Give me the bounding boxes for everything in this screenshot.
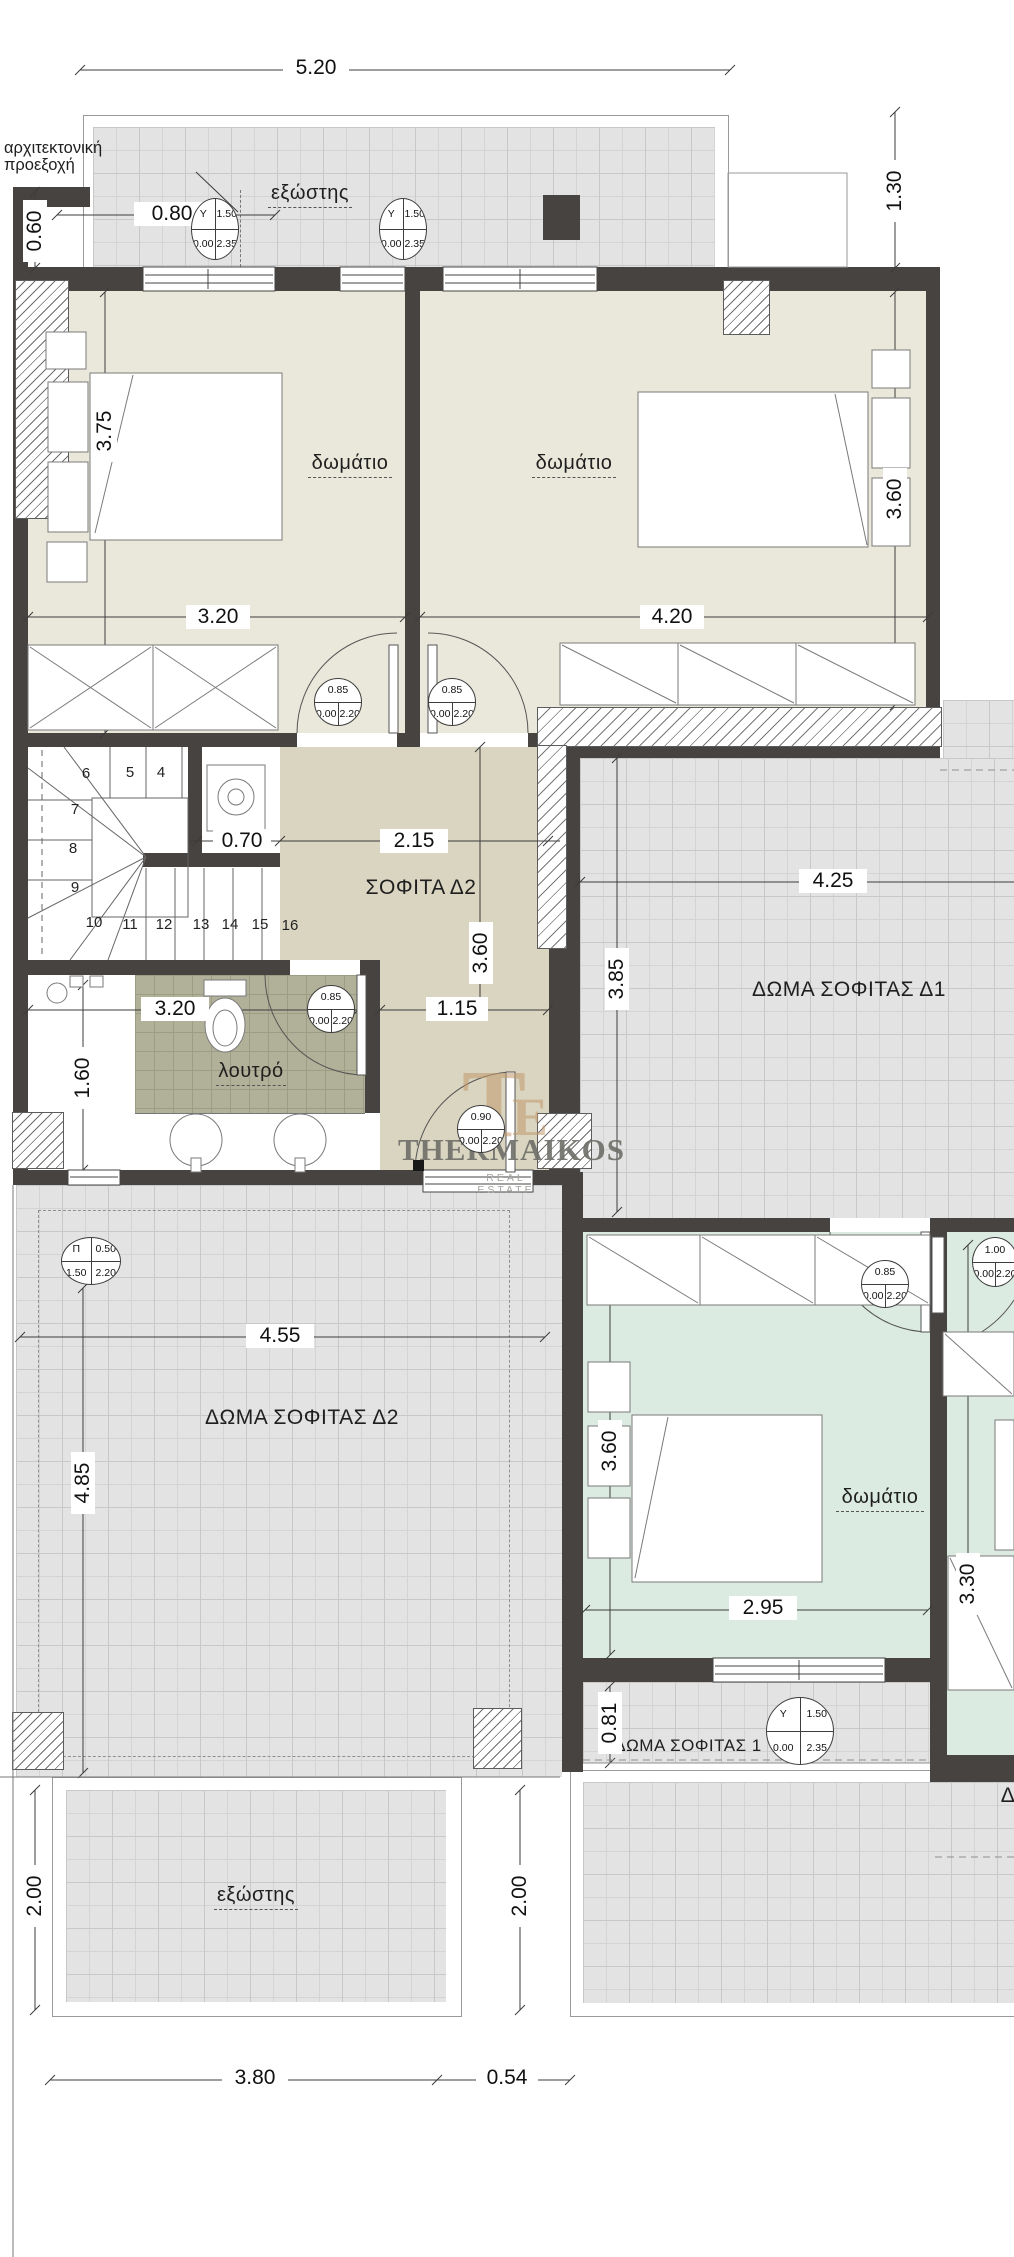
stair-step-7: 7: [64, 801, 86, 818]
stair-step-5: 5: [119, 764, 141, 781]
label-bath: λουτρό: [216, 1060, 286, 1086]
note-line2: προεξοχή: [4, 157, 194, 174]
label-balcony-bottom: εξώστης: [214, 1884, 298, 1910]
stair-step-15: 15: [249, 916, 271, 933]
dim-balcony-right: 2.00: [508, 1865, 532, 1927]
stair-step-4: 4: [150, 764, 172, 781]
stair-step-11: 11: [119, 916, 141, 933]
window-tag-terrace2: Π0.50 1.502.20: [61, 1237, 121, 1285]
dim-roof2-width: 4.55: [246, 1324, 314, 1348]
label-cut-fragment: Δ: [1000, 1784, 1014, 1808]
door-tag-hall: 0.90 0.002.20: [457, 1105, 505, 1153]
wardrobe-bedroom2: [560, 643, 915, 705]
dim-bath-width: 3.20: [141, 997, 209, 1021]
basins: [170, 1114, 326, 1172]
label-roof-loft1: ΔΩΜΑ ΣΟΦΙΤΑΣ Δ1: [750, 978, 948, 1002]
door-bath-leaf: [357, 975, 366, 1075]
dim-hall-width: 2.15: [380, 829, 448, 853]
dim-bed3-width: 2.95: [729, 1596, 797, 1620]
wardrobe-bedroom4: [943, 1332, 1014, 1690]
stair-step-9: 9: [64, 879, 86, 896]
dim-roof2-height: 4.85: [71, 1452, 95, 1514]
stair-step-10: 10: [83, 914, 105, 931]
label-roof-loft3: ΔΩΜΑ ΣΟΦΙΤΑΣ 1: [610, 1736, 766, 1756]
label-loft: ΣΟΦΙΤΑ Δ2: [360, 876, 482, 900]
door-tag-bedroom1: 0.85 0.002.20: [314, 678, 362, 726]
bed-bedroom2: [638, 350, 910, 547]
washing-machine: [207, 765, 265, 831]
label-bedroom3: δωμάτιο: [836, 1486, 924, 1512]
toilet: [204, 980, 246, 1052]
dim-strip-height: 0.81: [598, 1692, 622, 1754]
bed-bedroom3: [588, 1362, 822, 1582]
dim-hall2-width: 1.15: [426, 997, 488, 1021]
bed-bedroom1: [46, 332, 282, 582]
stair-step-8: 8: [62, 840, 84, 857]
logo-tagline: REAL ESTATE: [458, 1172, 554, 1196]
wardrobe-bedroom1: [28, 645, 278, 730]
dim-roof1-height: 3.85: [605, 948, 629, 1010]
dim-right-height: 1.30: [883, 160, 907, 222]
window-tag-balcony-1: Y1.50 0.002.35: [191, 198, 239, 260]
door-tag-bedroom2: 0.85 0.002.20: [428, 678, 476, 726]
dim-bed1-height: 3.75: [93, 400, 117, 462]
dim-projection-height: 0.60: [23, 200, 47, 262]
logo-black-square: [413, 1160, 424, 1171]
note-projection: αρχιτεκτονική προεξοχή: [4, 140, 194, 175]
note-line1: αρχιτεκτονική: [4, 140, 194, 157]
door-tag-bedroom4: 1.00 0.002.20: [972, 1237, 1014, 1287]
stair-step-16: 16: [279, 917, 301, 934]
floor-plan: εξώστης δωμάτιο δωμάτιο ΣΟΦΙΤΑ Δ2 ΔΩΜΑ Σ…: [0, 0, 1014, 2257]
label-bedroom2: δωμάτιο: [532, 452, 616, 478]
dim-bed1-width: 3.20: [186, 605, 250, 629]
stair-step-13: 13: [190, 916, 212, 933]
dim-stair-width: 0.70: [213, 829, 271, 853]
dim-hall-height: 3.60: [469, 922, 493, 984]
small-sink: [47, 976, 103, 1003]
dim-balcony-left: 2.00: [23, 1865, 47, 1927]
window-tag-balcony-2: Y1.50 0.002.35: [379, 198, 427, 260]
dim-total-width: 5.20: [283, 56, 349, 80]
label-roof-loft2: ΔΩΜΑ ΣΟΦΙΤΑΣ Δ2: [195, 1406, 409, 1430]
door-bedroom4-leaf: [932, 1237, 944, 1313]
door-bedroom1-leaf: [389, 645, 398, 733]
dim-bottom-left: 3.80: [222, 2066, 288, 2090]
dim-bottom-right: 0.54: [476, 2066, 538, 2090]
label-balcony-top: εξώστης: [268, 182, 352, 208]
stair-step-12: 12: [153, 916, 175, 933]
dim-bed4-height: 3.30: [956, 1553, 980, 1615]
dim-bed2-height: 3.60: [883, 468, 907, 530]
dim-bath-height: 1.60: [71, 1047, 95, 1109]
window-tag-strip: Y1.50 0.002.35: [766, 1697, 834, 1765]
dim-bed3-height: 3.60: [598, 1420, 622, 1482]
dim-roof1-width: 4.25: [799, 869, 867, 893]
logo-name: THERMAIKOS: [398, 1132, 612, 1168]
label-bedroom1: δωμάτιο: [308, 452, 392, 478]
stair-step-6: 6: [75, 765, 97, 782]
door-tag-bath: 0.85 0.002.20: [307, 985, 355, 1033]
dim-bed2-width: 4.20: [640, 605, 704, 629]
stair-step-14: 14: [219, 916, 241, 933]
door-tag-bedroom3: 0.85 0.002.20: [861, 1260, 909, 1308]
